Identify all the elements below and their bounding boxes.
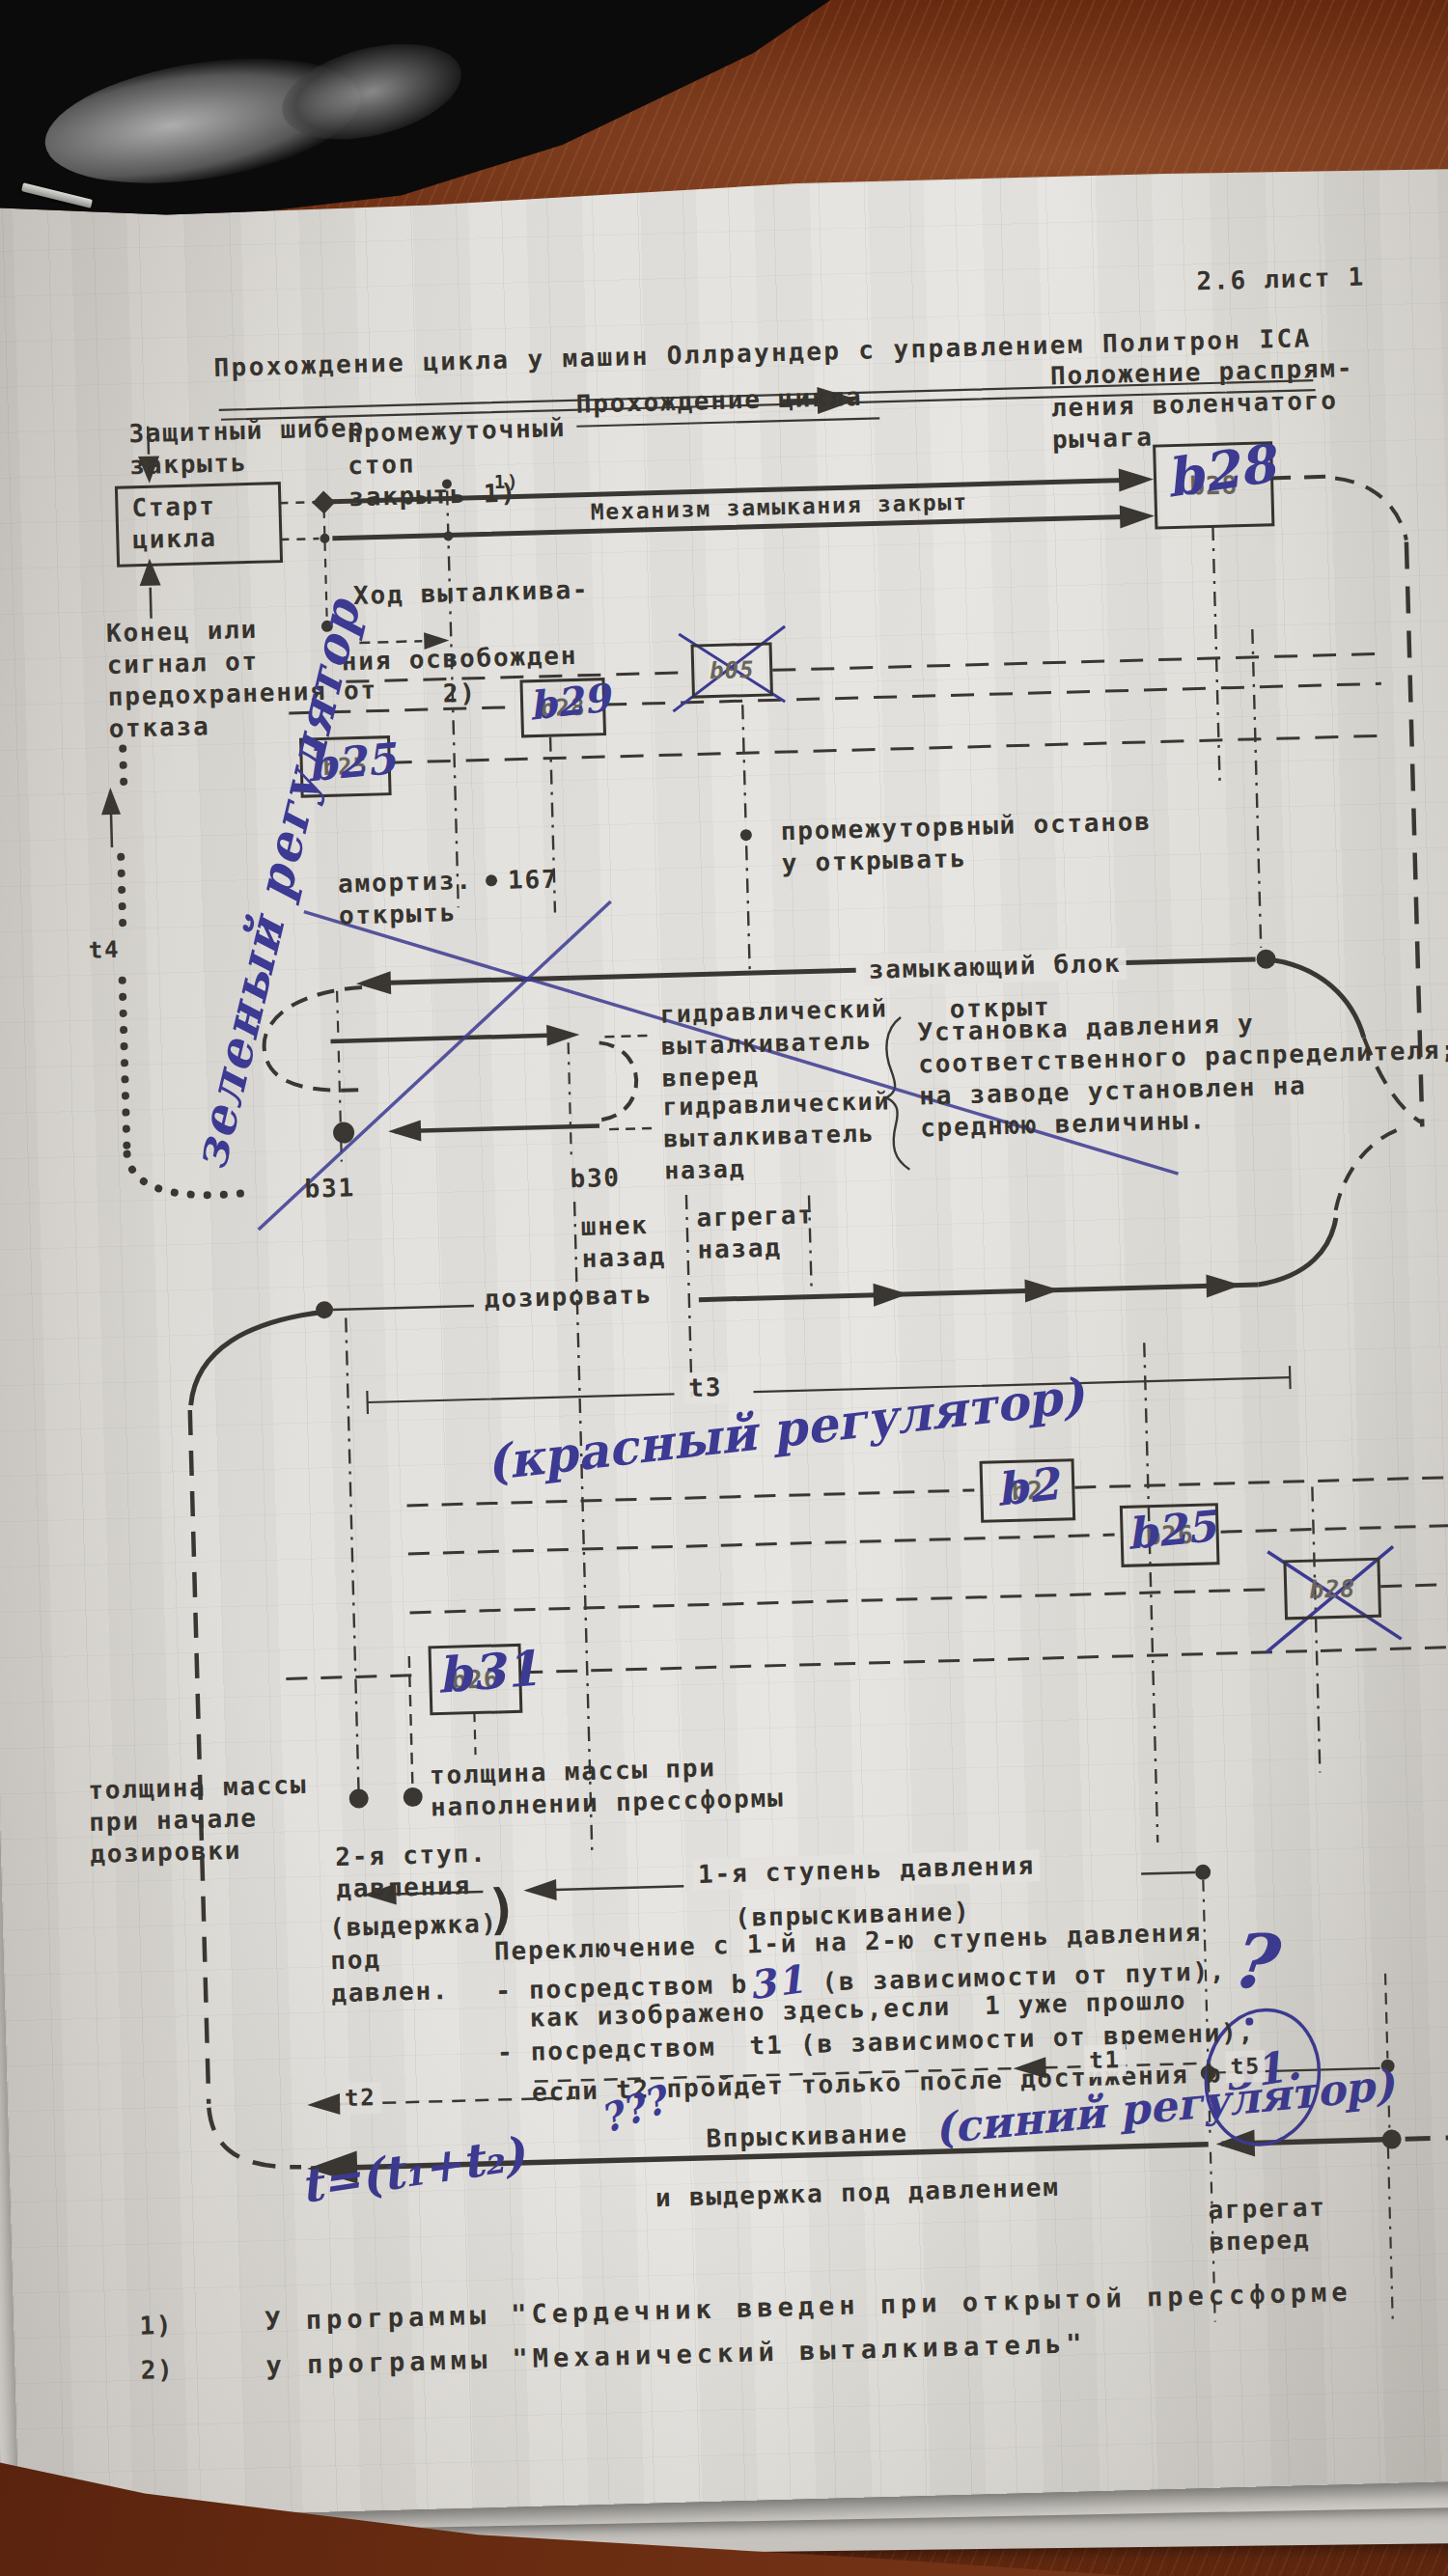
stage2-hold-label: (выдержка) под давлен. [329, 1907, 500, 2010]
box-b29-handwritten: b29 [527, 674, 612, 728]
box-b29: b28 b29 [519, 678, 606, 737]
unit-forward-label: агрегат вперед [1208, 2191, 1327, 2257]
box-b2: b2 b2 [980, 1458, 1076, 1523]
box-b25-lower: b26 b25 [1120, 1503, 1220, 1567]
box-b28-top: b28 b28 [1153, 441, 1274, 529]
box-b31: b26 b31 [428, 1644, 522, 1716]
shock-absorber-label: амортиз. открыть [338, 865, 474, 932]
crank-position-label: Положение распрям- ления воленчатого рыч… [1050, 352, 1356, 456]
start-cycle-box: Старт цикла [115, 482, 283, 568]
box-b28x-typed: b28 [1286, 1561, 1378, 1618]
unit-back-label: агрегат назад [696, 1199, 816, 1265]
box-b31-handwritten: b31 [435, 1640, 541, 1704]
box-b25l-handwritten: b25 [1125, 1501, 1218, 1559]
mass-thickness-start-label: толщина массы при начале дозировки [88, 1769, 310, 1870]
stage2-label: 2-я ступ. давления [335, 1838, 488, 1905]
pressure-setup-note: Установка давления у соответственного ра… [917, 1002, 1448, 1144]
t4-label: t4 [88, 934, 120, 967]
box-b28-crossed: b28 [1283, 1558, 1381, 1620]
footnote1-number: 1) [139, 2310, 174, 2342]
injection-label: Впрыскивание [706, 2118, 908, 2155]
b31-tick-label: b31 [304, 1172, 355, 1205]
sheet-number: 2.6 лист 1 [1196, 262, 1365, 298]
hydraulic-ejector-back-label: гидравлический выталкиватель назад [662, 1085, 893, 1186]
ejector-stroke-label-2: ния освобожден [341, 640, 577, 679]
intermediate-halt-label: промежуторвный останов у открывать [780, 806, 1153, 879]
t2-label: t2 [340, 2082, 381, 2115]
box-b05-crossed: b05 [691, 642, 773, 698]
guard-slide-label: Защитный шибер закрыть [128, 412, 366, 483]
mass-thickness-fill-label: толщина массы при наполнении прессформы [430, 1750, 785, 1823]
footnote-1-marker: 1) [493, 465, 519, 498]
b30-tick-label: b30 [570, 1162, 621, 1195]
start-cycle-label: Старт цикла [131, 490, 217, 556]
hw-question-mark: ? [1225, 1916, 1276, 2007]
dose-label: дозировать [484, 1279, 653, 1316]
screw-back-label: шнек назад [580, 1209, 666, 1275]
ejector-stroke-label-1: Ход выталкива- [353, 573, 590, 612]
big-paren: ) [485, 1893, 519, 1925]
footnote-2-marker: 2) [442, 678, 477, 710]
document-page: 2.6 лист 1 Прохождение цикла у машин Олл… [0, 86, 1448, 2520]
value-167: 167 [508, 863, 559, 896]
intermediate-stop-label: промежуточный стоп закрыть 1) [347, 412, 569, 513]
box-b05-typed: b05 [694, 645, 770, 695]
hydraulic-ejector-forward-label: гидравлический выталкиватель вперед [659, 992, 890, 1094]
t3-label: t3 [683, 1371, 728, 1404]
footnote2-number: 2) [140, 2354, 175, 2387]
box-b2-handwritten: b2 [993, 1457, 1061, 1516]
t1-label: t1 [1084, 2044, 1126, 2077]
